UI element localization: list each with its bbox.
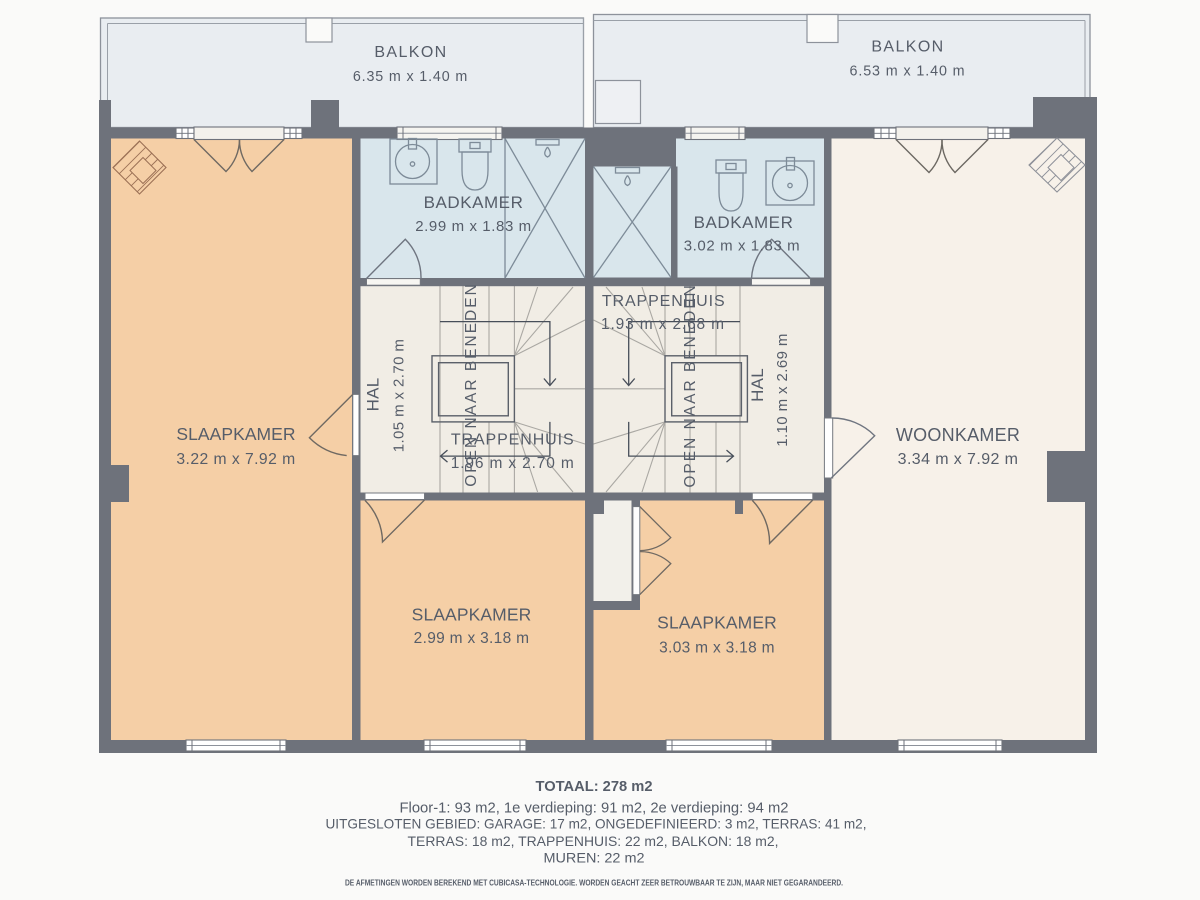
svg-text:TERRAS: 18 m2, TRAPPENHUIS: 22: TERRAS: 18 m2, TRAPPENHUIS: 22 m2, BALKO… xyxy=(408,833,779,849)
svg-text:3.34 m x 7.92 m: 3.34 m x 7.92 m xyxy=(898,451,1019,468)
svg-text:DE AFMETINGEN WORDEN BEREKEND: DE AFMETINGEN WORDEN BEREKEND MET CUBICA… xyxy=(345,878,843,888)
svg-text:BALKON: BALKON xyxy=(374,44,447,61)
svg-text:UITGESLOTEN GEBIED: GARAGE: 17: UITGESLOTEN GEBIED: GARAGE: 17 m2, ONGED… xyxy=(326,816,867,832)
svg-text:1.05 m x 2.70 m: 1.05 m x 2.70 m xyxy=(391,339,408,453)
svg-text:HAL: HAL xyxy=(748,368,767,402)
svg-text:MUREN: 22 m2: MUREN: 22 m2 xyxy=(544,850,645,866)
svg-text:SLAAPKAMER: SLAAPKAMER xyxy=(176,424,295,444)
svg-text:3.02 m x 1.83 m: 3.02 m x 1.83 m xyxy=(684,238,801,255)
svg-text:Floor-1: 93 m2, 1e verdieping:: Floor-1: 93 m2, 1e verdieping: 91 m2, 2e… xyxy=(400,801,789,817)
svg-text:3.03 m x 3.18 m: 3.03 m x 3.18 m xyxy=(659,640,775,657)
svg-text:WOONKAMER: WOONKAMER xyxy=(896,425,1020,445)
svg-text:TRAPPENHUIS: TRAPPENHUIS xyxy=(602,293,726,310)
svg-text:HAL: HAL xyxy=(364,378,383,412)
svg-text:1.10 m x 2.69 m: 1.10 m x 2.69 m xyxy=(774,333,791,447)
svg-text:6.35 m x 1.40 m: 6.35 m x 1.40 m xyxy=(353,69,468,85)
svg-text:SLAAPKAMER: SLAAPKAMER xyxy=(412,605,532,625)
svg-text:OPEN NAAR BENEDEN: OPEN NAAR BENEDEN xyxy=(463,282,480,487)
svg-text:OPEN NAAR BENEDEN: OPEN NAAR BENEDEN xyxy=(682,283,699,488)
svg-text:BALKON: BALKON xyxy=(871,39,944,56)
svg-text:3.22 m x 7.92 m: 3.22 m x 7.92 m xyxy=(176,451,295,468)
svg-text:6.53 m x 1.40 m: 6.53 m x 1.40 m xyxy=(849,64,965,80)
svg-text:BADKAMER: BADKAMER xyxy=(694,213,794,232)
svg-text:2.99 m x 1.83 m: 2.99 m x 1.83 m xyxy=(415,218,532,235)
svg-text:SLAAPKAMER: SLAAPKAMER xyxy=(657,613,777,633)
svg-text:TOTAAL: 278 m2: TOTAAL: 278 m2 xyxy=(536,779,653,795)
svg-text:2.99 m x 3.18 m: 2.99 m x 3.18 m xyxy=(414,630,530,647)
svg-text:BADKAMER: BADKAMER xyxy=(424,193,524,212)
svg-text:1.93 m x 2.68 m: 1.93 m x 2.68 m xyxy=(601,316,725,333)
